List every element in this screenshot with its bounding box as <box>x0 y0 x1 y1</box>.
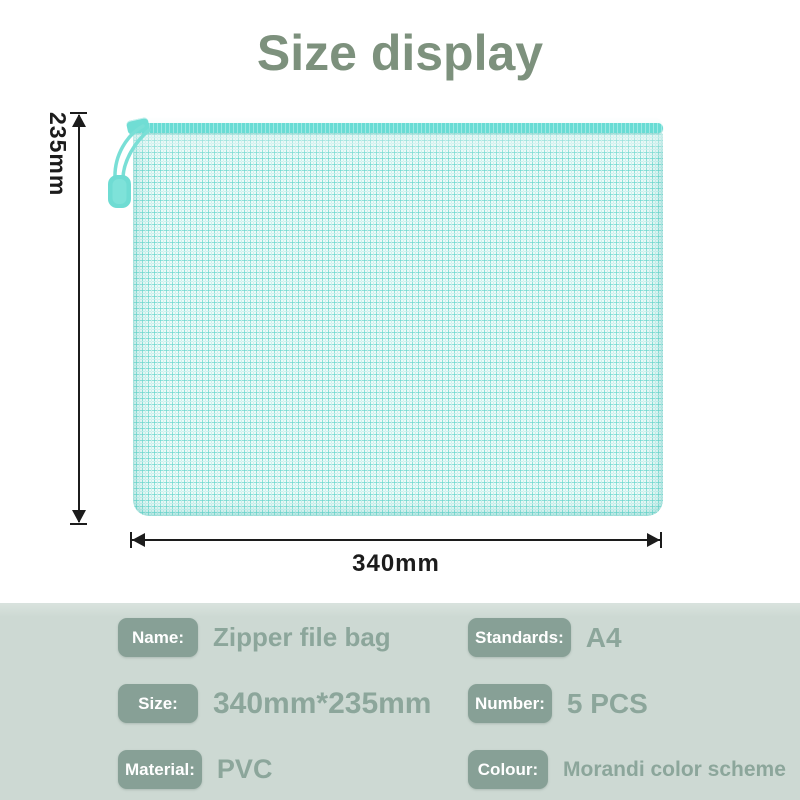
spec-value-material: PVC <box>217 754 273 785</box>
height-dimension-line <box>78 115 80 522</box>
spec-badge-colour: Colour: <box>468 750 548 789</box>
spec-value-colour: Morandi color scheme <box>563 758 786 782</box>
spec-item-colour: Colour: Morandi color scheme <box>400 750 800 789</box>
height-arrow-up-icon <box>72 114 86 127</box>
spec-item-standards: Standards: A4 <box>400 618 800 657</box>
spec-item-material: Material: PVC <box>0 750 400 789</box>
spec-value-number: 5 PCS <box>567 688 648 720</box>
height-arrow-down-icon <box>72 510 86 523</box>
width-arrow-right-icon <box>647 533 660 547</box>
bag-mesh-body <box>133 132 663 516</box>
spec-value-size: 340mm*235mm <box>213 687 431 721</box>
spec-badge-standards: Standards: <box>468 618 571 657</box>
height-cap-bottom <box>70 523 87 525</box>
page-title: Size display <box>0 24 800 82</box>
spec-badge-name: Name: <box>118 618 198 657</box>
spec-value-name: Zipper file bag <box>213 622 391 653</box>
spec-badge-number: Number: <box>468 684 552 723</box>
specs-grid: Name: Zipper file bag Standards: A4 Size… <box>0 618 800 789</box>
width-cap-right <box>660 532 662 548</box>
spec-item-name: Name: Zipper file bag <box>0 618 400 657</box>
spec-badge-size: Size: <box>118 684 198 723</box>
width-dimension-line <box>132 539 660 541</box>
specs-panel: Name: Zipper file bag Standards: A4 Size… <box>0 603 800 800</box>
width-dimension-label: 340mm <box>130 550 662 578</box>
spec-item-number: Number: 5 PCS <box>400 684 800 723</box>
spec-item-size: Size: 340mm*235mm <box>0 684 400 723</box>
zipper-band <box>133 123 663 133</box>
height-dimension-label: 235mm <box>44 112 71 525</box>
file-bag-image <box>133 117 663 516</box>
width-arrow-left-icon <box>132 533 145 547</box>
spec-badge-material: Material: <box>118 750 202 789</box>
page-root: Size display 235mm <box>0 0 800 800</box>
width-dimension: 340mm <box>130 532 662 548</box>
zipper-tape <box>133 117 663 132</box>
spec-value-standards: A4 <box>586 622 622 654</box>
height-dimension: 235mm <box>44 112 114 525</box>
